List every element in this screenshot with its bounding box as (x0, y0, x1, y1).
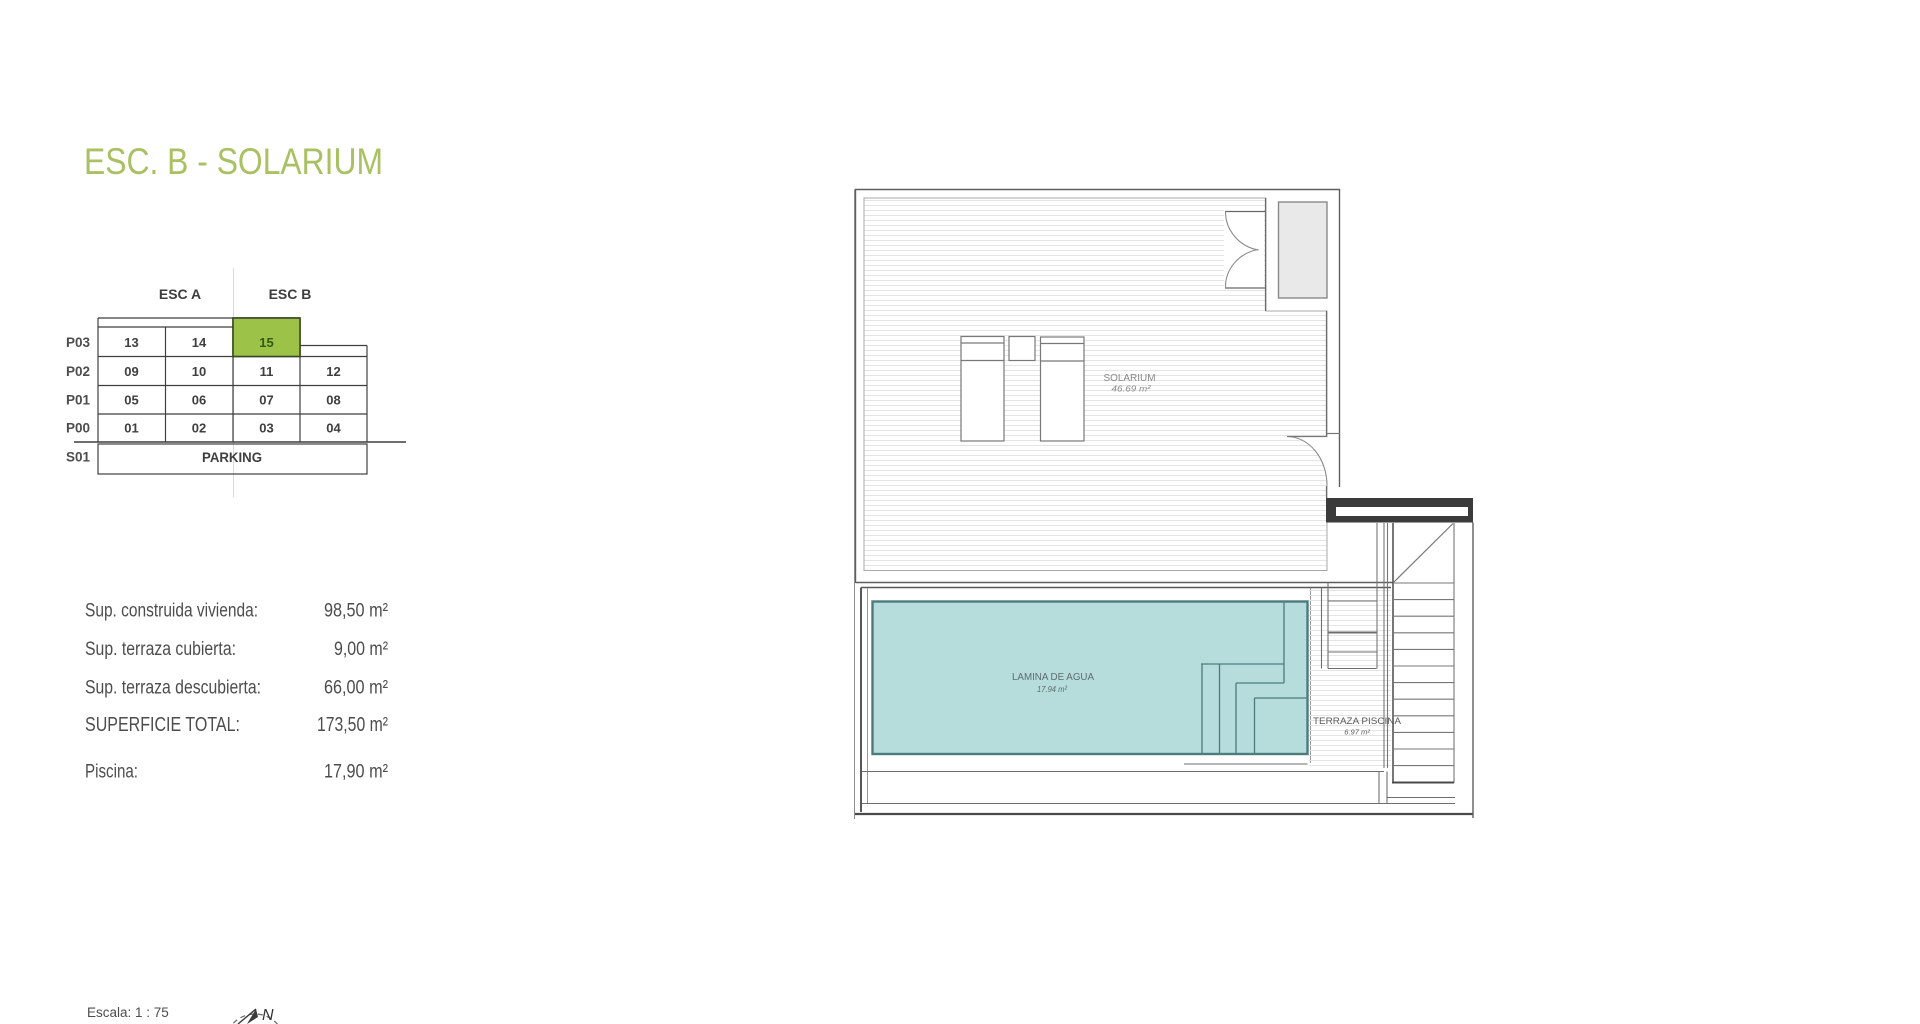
svg-text:14: 14 (192, 335, 207, 350)
svg-text:LAMINA DE AGUA: LAMINA DE AGUA (1012, 671, 1094, 683)
svg-text:ESC A: ESC A (159, 286, 201, 302)
svg-text:Escala: 1 : 75: Escala: 1 : 75 (87, 1005, 169, 1020)
svg-text:SUPERFICIE TOTAL:: SUPERFICIE TOTAL: (85, 713, 240, 736)
svg-text:04: 04 (326, 421, 341, 436)
svg-text:P03: P03 (66, 335, 91, 350)
svg-text:17,90 m²: 17,90 m² (324, 762, 388, 783)
svg-text:ESC B: ESC B (269, 286, 312, 302)
svg-text:46.69 m²: 46.69 m² (1112, 384, 1152, 394)
svg-text:P02: P02 (66, 364, 90, 379)
svg-text:P00: P00 (66, 421, 90, 436)
svg-text:Sup. terraza descubierta:: Sup. terraza descubierta: (85, 678, 261, 699)
svg-text:06: 06 (192, 393, 206, 408)
svg-text:Sup. terraza cubierta:: Sup. terraza cubierta: (85, 639, 236, 660)
svg-text:ESC. B - SOLARIUM: ESC. B - SOLARIUM (84, 141, 383, 182)
svg-text:P01: P01 (66, 393, 91, 408)
svg-text:07: 07 (259, 393, 273, 408)
svg-text:10: 10 (192, 364, 206, 379)
svg-text:12: 12 (326, 364, 340, 379)
svg-text:17.94 m²: 17.94 m² (1037, 684, 1068, 694)
svg-text:173,50 m²: 173,50 m² (317, 713, 388, 736)
svg-text:13: 13 (124, 335, 138, 350)
svg-text:TERRAZA PISCINA: TERRAZA PISCINA (1313, 716, 1402, 727)
svg-text:Sup. construida vivienda:: Sup. construida vivienda: (85, 601, 258, 622)
svg-text:02: 02 (192, 421, 206, 436)
svg-text:98,50 m²: 98,50 m² (324, 601, 388, 622)
svg-text:05: 05 (124, 393, 138, 408)
svg-text:Piscina:: Piscina: (85, 762, 138, 783)
svg-text:66,00 m²: 66,00 m² (324, 678, 388, 699)
svg-text:11: 11 (260, 364, 274, 379)
svg-text:03: 03 (259, 421, 273, 436)
svg-text:08: 08 (326, 393, 340, 408)
svg-text:15: 15 (259, 335, 273, 350)
svg-text:PARKING: PARKING (202, 449, 262, 465)
svg-text:S01: S01 (66, 450, 91, 465)
svg-text:9,00 m²: 9,00 m² (334, 639, 388, 660)
svg-text:01: 01 (124, 421, 138, 436)
svg-text:6.97 m²: 6.97 m² (1344, 728, 1370, 737)
svg-text:SOLARIUM: SOLARIUM (1104, 372, 1156, 384)
svg-text:09: 09 (124, 364, 138, 379)
svg-text:N: N (262, 1007, 274, 1024)
